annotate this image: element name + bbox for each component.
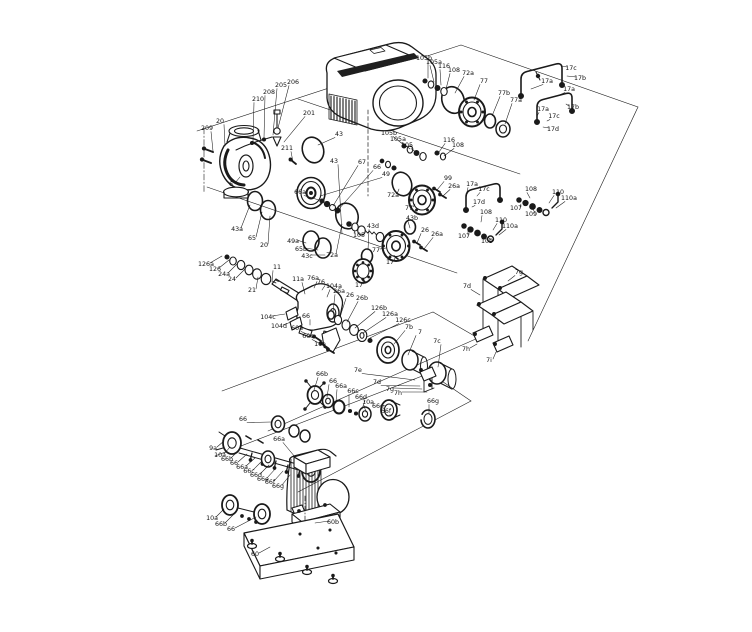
callout-60: 60: [251, 551, 259, 558]
callout-208: 208: [263, 89, 275, 96]
callout-66b: 66b: [215, 521, 227, 528]
callout-105: 105: [353, 232, 365, 239]
callout-77: 77: [405, 205, 413, 212]
callout-17a: 17a: [563, 86, 575, 93]
callout-65: 65: [248, 235, 256, 242]
callout-205: 205: [275, 82, 287, 89]
callout-108: 108: [452, 142, 464, 149]
callout-17: 17: [386, 259, 394, 266]
callout-leader: [283, 443, 295, 458]
callout-7d: 7d: [373, 379, 381, 386]
callout-17a: 17a: [541, 78, 553, 85]
seal-row-2: [380, 144, 446, 215]
callout-66: 66: [302, 313, 310, 320]
callout-leader: [493, 224, 497, 231]
callout-leader: [247, 422, 271, 423]
callout-17d: 17d: [547, 126, 559, 133]
callout-66: 66: [227, 526, 235, 533]
callout-107: 107: [458, 233, 470, 240]
callout-7e: 7e: [354, 367, 362, 374]
callout-10a: 10a: [314, 341, 326, 348]
callout-126c: 126c: [395, 317, 411, 324]
callout-leader: [408, 222, 410, 229]
callout-leader: [236, 269, 245, 278]
callout-43: 43: [335, 131, 343, 138]
callout-leader: [320, 178, 382, 197]
callout-206: 206: [287, 79, 299, 86]
callout-leader: [278, 86, 289, 129]
callout-43c: 43c: [301, 253, 313, 260]
callout-leader: [443, 190, 450, 197]
callout-104c: 104c: [260, 314, 276, 321]
callout-43a: 43a: [231, 226, 243, 233]
callout-77a: 77a: [510, 97, 522, 104]
callout-66g: 66g: [427, 398, 439, 405]
callout-leader: [272, 271, 273, 283]
callout-leader: [531, 85, 543, 90]
callout-7g: 7g: [386, 386, 394, 393]
callout-26: 26: [346, 292, 354, 299]
callout-leader: [347, 302, 358, 323]
callout-72a: 72a: [387, 192, 399, 199]
callout-108: 108: [525, 186, 537, 193]
coupling-row-c: [222, 495, 270, 524]
callout-210: 210: [252, 96, 264, 103]
callout-7h: 7h: [462, 346, 470, 353]
callout-77b: 77b: [498, 90, 510, 97]
callout-66g: 66g: [272, 483, 284, 490]
housing-bolts: [200, 147, 213, 163]
callout-66b: 66b: [316, 371, 328, 378]
seal-row-1: [423, 79, 510, 137]
callout-leader: [549, 196, 554, 204]
callout-leader: [336, 224, 342, 254]
callout-20: 20: [216, 118, 224, 125]
callout-26b: 26b: [356, 295, 368, 302]
callout-108: 108: [448, 67, 460, 74]
callout-201: 201: [303, 110, 315, 117]
callout-7d: 7d: [463, 283, 471, 290]
callout-leader: [444, 149, 454, 157]
callout-26a: 26a: [333, 288, 345, 295]
callout-66a: 66a: [273, 436, 285, 443]
callout-9a: 9a: [209, 445, 217, 452]
callout-leader: [439, 144, 445, 153]
callout-7c: 7c: [433, 338, 441, 345]
callout-66a: 66a: [335, 383, 347, 390]
coupling-rings: [328, 311, 456, 392]
callout-17c: 17c: [548, 113, 560, 120]
callout-49a: 49a: [287, 238, 299, 245]
callout-72a: 72a: [326, 252, 338, 259]
callout-60c: 60c: [302, 333, 314, 340]
callout-17b: 17b: [567, 104, 579, 111]
callout-leader: [238, 454, 247, 462]
callout-109: 109: [481, 238, 493, 245]
callout-7h: 7h: [394, 390, 402, 397]
callout-209: 209: [201, 125, 213, 132]
callout-leader: [224, 125, 225, 147]
callout-49: 49: [382, 171, 390, 178]
callout-11: 11: [273, 264, 281, 271]
callout-leader: [211, 132, 213, 152]
callout-99: 99: [444, 175, 452, 182]
callout-24: 24: [228, 276, 236, 283]
callout-leader: [471, 290, 480, 296]
callout-leader: [470, 344, 477, 348]
callout-leader: [437, 182, 444, 191]
bearing-bracket: [225, 255, 343, 353]
callout-60b: 60b: [327, 519, 339, 526]
callout-72a: 72a: [462, 70, 474, 77]
callout-leader: [284, 117, 305, 143]
callout-66: 66: [239, 416, 247, 423]
callout-17: 17: [355, 282, 363, 289]
callout-leader: [481, 216, 482, 223]
pump-housing: [220, 126, 271, 199]
callout-108: 108: [480, 209, 492, 216]
callout-17a: 17a: [466, 181, 478, 188]
callout-17a: 17a: [537, 106, 549, 113]
callout-leader: [394, 331, 405, 345]
callout-26: 26: [421, 227, 429, 234]
callout-7: 7: [418, 329, 422, 336]
callout-105: 105: [401, 142, 413, 149]
callout-6: 6: [229, 181, 233, 188]
callout-leader: [256, 212, 262, 237]
callout-20: 20: [260, 242, 268, 249]
callout-7g: 7g: [515, 269, 523, 276]
callout-77: 77: [372, 247, 380, 254]
callout-leader: [235, 517, 256, 528]
callout-17c: 17c: [478, 186, 490, 193]
callout-77: 77: [480, 78, 488, 85]
callout-110a: 110a: [561, 195, 577, 202]
callout-43b: 43b: [406, 215, 418, 222]
callout-211: 211: [281, 145, 293, 152]
callout-leader: [274, 471, 283, 481]
diagram-stage: 209202102082052062012116434367664966a43a…: [0, 0, 752, 632]
callout-leader: [424, 238, 433, 250]
callout-leader: [417, 234, 421, 244]
callout-leader: [264, 96, 265, 139]
callout-21: 21: [248, 287, 256, 294]
callout-66f: 66f: [381, 408, 392, 415]
callout-66: 66: [373, 164, 381, 171]
callout-67: 67: [358, 159, 366, 166]
callout-leader: [440, 70, 441, 86]
callout-17c: 17c: [565, 65, 577, 72]
callout-66a: 66a: [294, 189, 306, 196]
callout-leader: [241, 205, 250, 228]
exploded-view-diagram: 209202102082052062012116434367664966a43a…: [0, 0, 752, 632]
callout-26a: 26a: [431, 231, 443, 238]
callout-leader: [355, 312, 375, 329]
callout-107: 107: [510, 205, 522, 212]
callout-60a: 60a: [291, 325, 303, 332]
callout-110a: 110a: [502, 223, 518, 230]
callout-109: 109: [525, 211, 537, 218]
callout-43: 43: [330, 158, 338, 165]
callout-leader: [527, 193, 530, 199]
callout-11a: 11a: [292, 276, 304, 283]
callout-leader: [505, 104, 512, 125]
callout-76: 76: [317, 279, 325, 286]
callout-43d: 43d: [367, 223, 379, 230]
callout-leader: [477, 193, 480, 197]
callout-leader: [394, 388, 422, 389]
callout-104d: 104d: [271, 323, 287, 330]
callout-leader: [362, 374, 415, 381]
callout-65b: 65b: [295, 246, 307, 253]
callout-leader: [492, 97, 500, 117]
callout-7b: 7b: [405, 324, 413, 331]
callout-17b: 17b: [574, 75, 586, 82]
callout-7i: 7i: [486, 357, 492, 364]
callout-26a: 26a: [448, 183, 460, 190]
callout-leader: [493, 352, 496, 359]
callout-17d: 17d: [473, 199, 485, 206]
